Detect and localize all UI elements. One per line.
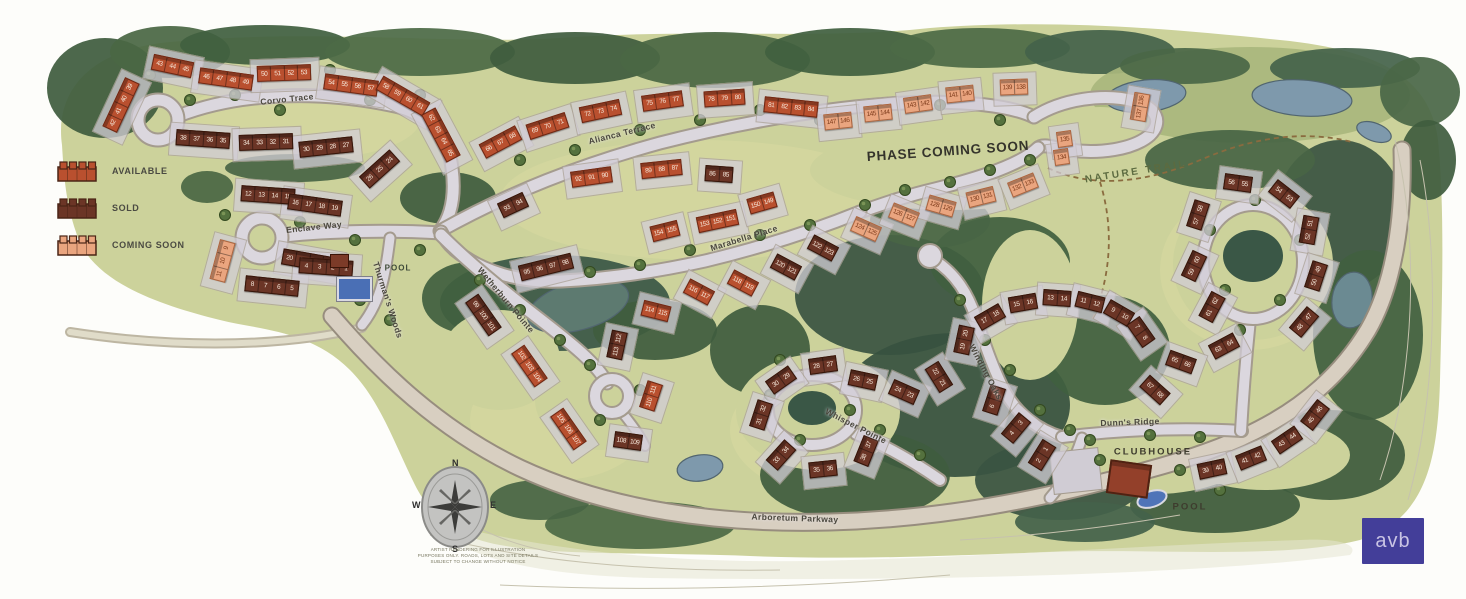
legend-item-sold: SOLD <box>56 195 246 221</box>
avb-logo: avb <box>1362 518 1424 564</box>
compass-rose: N E S W <box>410 462 500 554</box>
legend-item-available: AVAILABLE <box>56 158 246 184</box>
avb-logo-text: avb <box>1375 530 1410 553</box>
legend-label: AVAILABLE <box>112 166 168 176</box>
compass-west-label: W <box>412 500 421 510</box>
map-chrome-layer: AVAILABLESOLDCOMING SOON N E S W ARTIST … <box>0 0 1466 599</box>
legend-label: SOLD <box>112 203 139 213</box>
legend: AVAILABLESOLDCOMING SOON <box>56 158 246 269</box>
legend-label: COMING SOON <box>112 240 185 250</box>
legend-swatch-coming-soon-icon <box>56 232 98 258</box>
disclaimer-line: SUBJECT TO CHANGE WITHOUT NOTICE <box>398 559 558 565</box>
disclaimer-text: ARTIST RENDERING FOR ILLUSTRATIONPURPOSE… <box>398 547 558 565</box>
compass-north-label: N <box>452 458 459 468</box>
legend-swatch-available-icon <box>56 158 98 184</box>
legend-swatch-sold-icon <box>56 195 98 221</box>
compass-star-icon <box>410 462 500 554</box>
site-plan-map: 4241403943444546474849505152535455565758… <box>0 0 1466 599</box>
legend-item-coming-soon: COMING SOON <box>56 232 246 258</box>
compass-east-label: E <box>490 500 496 510</box>
